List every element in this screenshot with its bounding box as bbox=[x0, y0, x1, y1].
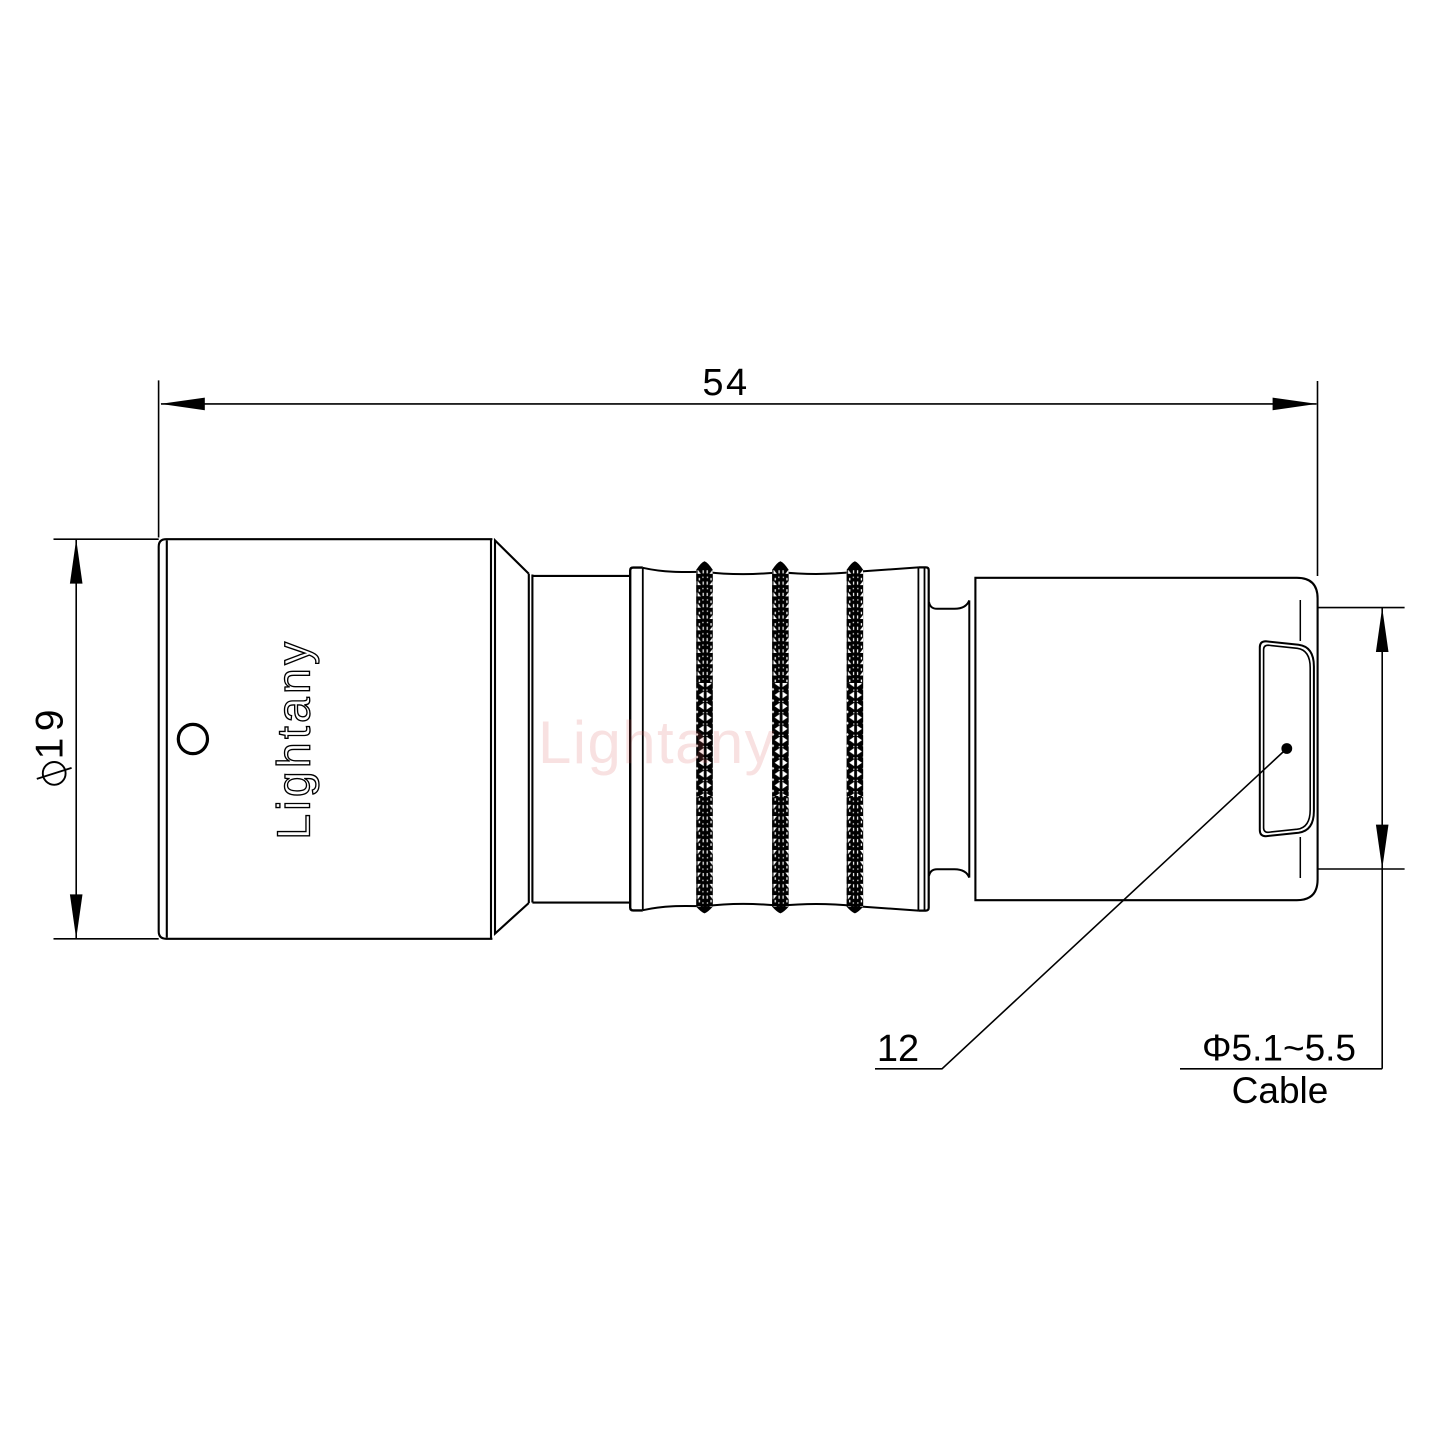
svg-text:Lightany: Lightany bbox=[538, 709, 776, 776]
svg-text:Cable: Cable bbox=[1232, 1070, 1329, 1111]
svg-text:Φ5.1~5.5: Φ5.1~5.5 bbox=[1202, 1028, 1356, 1069]
svg-text:19: 19 bbox=[29, 703, 72, 759]
svg-text:12: 12 bbox=[877, 1028, 919, 1070]
svg-text:Lightany: Lightany bbox=[268, 638, 320, 839]
svg-text:54: 54 bbox=[702, 362, 749, 404]
